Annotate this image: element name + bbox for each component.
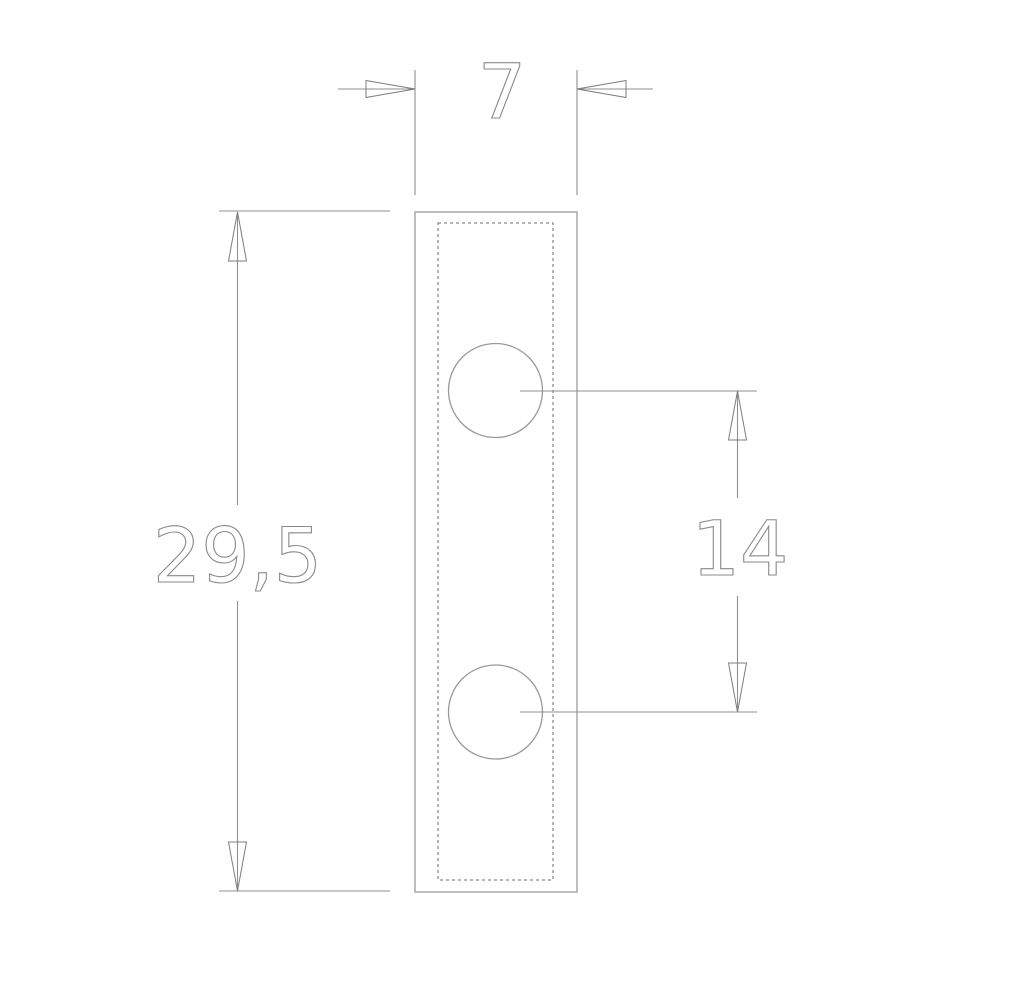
technical-drawing: 7 29,5 14 (0, 0, 1024, 1004)
width-dimension: 7 (338, 47, 653, 195)
width-dim-label: 7 (478, 47, 526, 136)
hole-spacing-dimension: 14 (520, 391, 788, 712)
part-inner-profile-dashed (438, 223, 553, 880)
height-dimension: 29,5 (153, 211, 390, 891)
height-dim-label: 29,5 (153, 511, 322, 600)
part-geometry (415, 212, 577, 892)
hole-spacing-dim-label: 14 (692, 504, 789, 593)
drawing-canvas: 7 29,5 14 (0, 0, 1024, 1004)
